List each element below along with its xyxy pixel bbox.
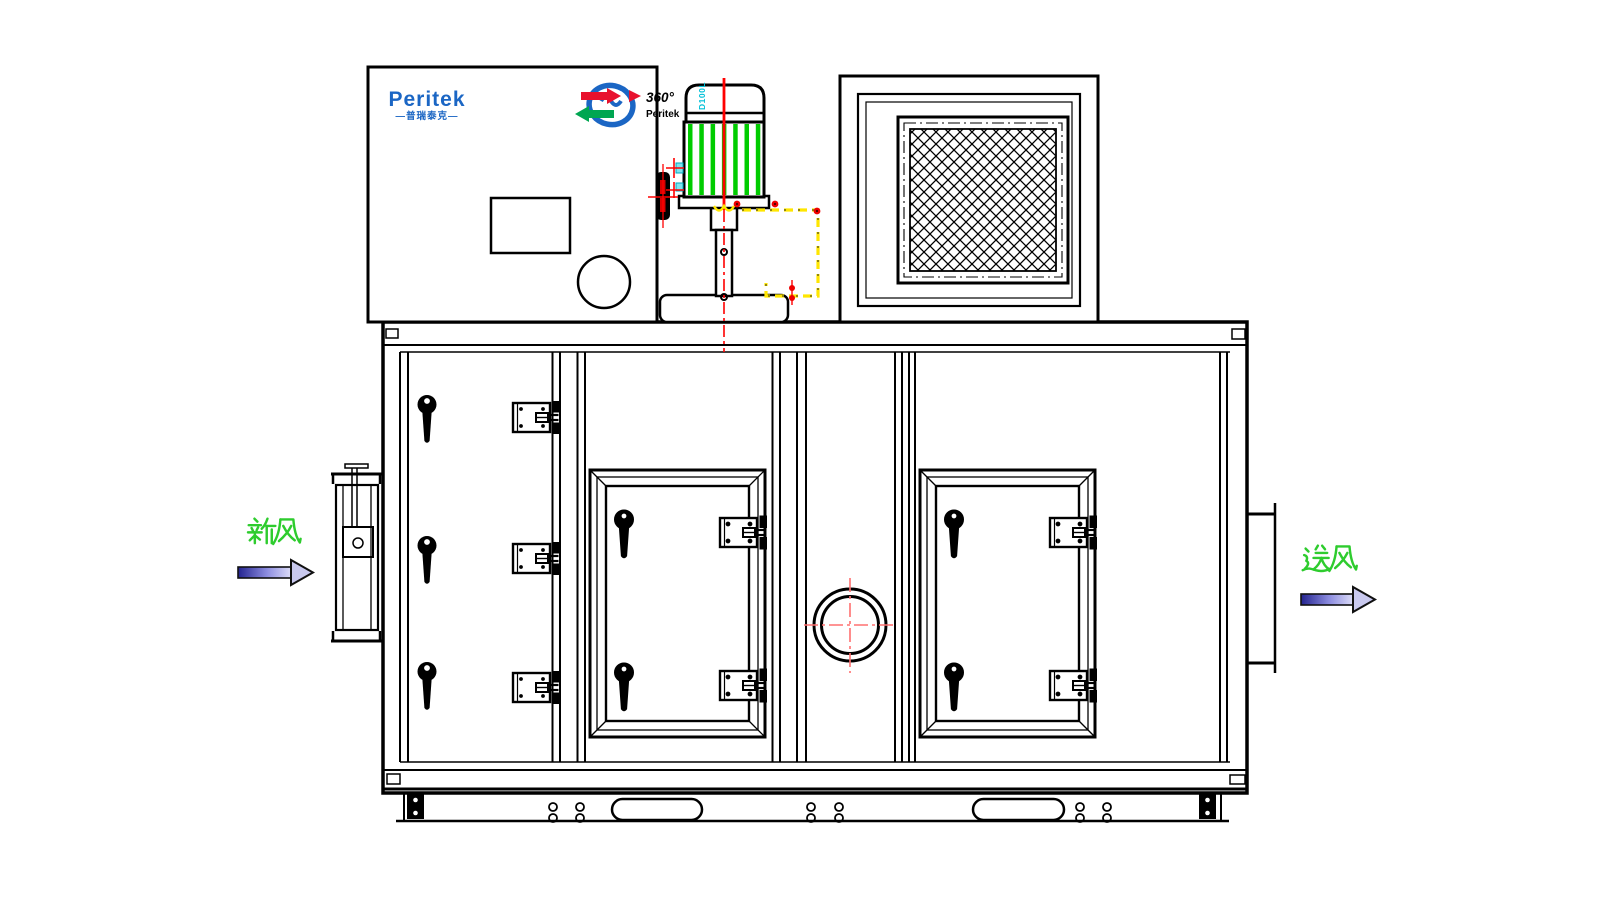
brand-logo-subtitle: —普瑞泰克— (395, 110, 458, 122)
brand-logo: Peritek —普瑞泰克— (388, 88, 465, 122)
inspection-port (578, 256, 630, 308)
control-panel-window (491, 198, 570, 253)
door-latch (1050, 516, 1097, 549)
door-handle (418, 662, 437, 710)
pipe-port (804, 578, 896, 673)
motor-marking-text: D100L (697, 82, 707, 110)
damper-actuator (343, 527, 373, 557)
supply-air-label: 送风 (1303, 546, 1357, 571)
base-frame (396, 793, 1229, 822)
base-bracket (1199, 794, 1216, 819)
supply-air-outlet (1248, 503, 1275, 673)
door-latch (720, 516, 767, 549)
door-handle (418, 536, 437, 584)
fresh-air-label: 新风 (248, 519, 301, 544)
fresh-air-arrow (238, 560, 313, 585)
door-handle (615, 663, 634, 711)
filter-mesh (910, 129, 1056, 271)
door-latch (1050, 669, 1097, 702)
corner-step (1230, 775, 1245, 784)
supply-air-arrow (1301, 587, 1375, 612)
control-cabinet-box: Peritek —普瑞泰克— 360° Peritek (368, 67, 680, 322)
forklift-slot (612, 799, 702, 820)
rotor-brand-text: Peritek (646, 109, 680, 120)
door-handle (615, 510, 634, 558)
door-handle (418, 395, 437, 443)
corner-step (386, 329, 398, 338)
left-access-panel (418, 395, 560, 710)
corner-step (1232, 329, 1245, 339)
forklift-slot (973, 799, 1064, 820)
door-handle (945, 510, 964, 558)
rotor-degree-text: 360° (646, 90, 675, 105)
door-latch (720, 669, 767, 702)
dehumidifier-front-view-drawing: Peritek —普瑞泰克— 360° Peritek (0, 0, 1613, 897)
door-handle (945, 663, 964, 711)
middle-access-door (590, 470, 767, 737)
brand-logo-text: Peritek (388, 88, 465, 111)
damper-rod-cap (345, 464, 368, 468)
filter-box (840, 76, 1098, 322)
fresh-air-inlet (331, 464, 382, 641)
port-crosshair (804, 578, 896, 673)
cad-drawing-canvas: Peritek —普瑞泰克— 360° Peritek (0, 0, 1613, 897)
corner-step (387, 774, 400, 784)
right-access-door (920, 470, 1097, 737)
base-bracket (407, 794, 424, 819)
fastener-markers (734, 201, 821, 305)
